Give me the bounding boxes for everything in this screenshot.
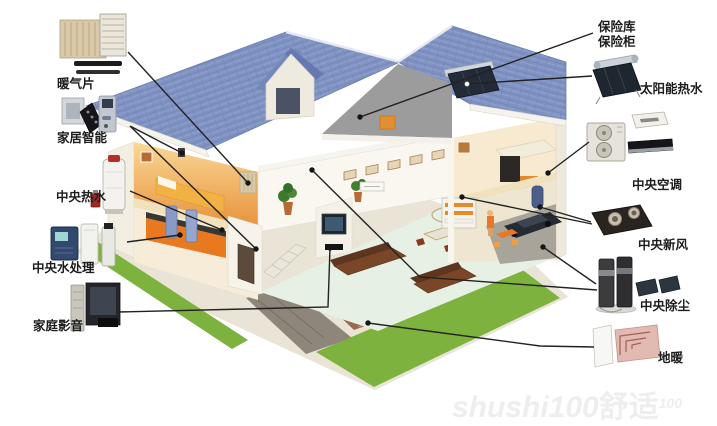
- label-vault-line1: 保险库: [597, 19, 636, 34]
- vacuum-inlet-icon-2: [659, 276, 680, 293]
- water-treatment-thumbnail: [51, 223, 115, 266]
- label-central-hot-water: 中央热水: [56, 189, 107, 204]
- corner-pillar: [448, 138, 454, 262]
- right-wing: [442, 118, 566, 264]
- label-water-treatment: 中央水处理: [32, 260, 95, 275]
- diagram-canvas: 暖气片 家居智能 中央热水 中央水处理 家庭影音 保险库 保险柜 太阳能热水 中…: [0, 0, 717, 426]
- label-solar: 太阳能热水: [640, 81, 703, 96]
- vacuum-inlet-icon-1: [636, 279, 658, 296]
- smart-home-thumbnail: [62, 96, 116, 133]
- display-cabinet: [442, 198, 476, 228]
- label-fresh-air: 中央新风: [638, 237, 689, 252]
- label-central-ac: 中央空调: [632, 177, 682, 192]
- label-central-vacuum: 中央除尘: [640, 298, 691, 313]
- label-radiator: 暖气片: [57, 76, 95, 91]
- water-heater-thumbnail: [91, 155, 125, 214]
- right-art-frame: [458, 142, 470, 153]
- watermark: shushi100舒适100: [452, 390, 682, 424]
- ceiling-ac-cassette-1f: [360, 182, 384, 191]
- ac-units-thumbnail: [587, 112, 673, 161]
- front-door: [238, 244, 254, 284]
- house-illustration: [75, 26, 568, 390]
- bedroom-art-frame: [141, 152, 152, 162]
- fresh-air-unit-thumbnail: [592, 205, 652, 235]
- attic-niche: [380, 116, 395, 129]
- floor-heating-thumbnail: [593, 325, 660, 367]
- right-side-wall: [556, 118, 566, 260]
- label-floor-heating: 地暖: [658, 350, 684, 365]
- label-smart-home: 家居智能: [57, 130, 108, 145]
- solar-heater-thumbnail: [593, 55, 641, 104]
- label-home-av: 家庭影音: [33, 318, 84, 333]
- label-vault-line2: 保险柜: [597, 34, 636, 49]
- home-systems-diagram: 暖气片 家居智能 中央热水 中央水处理 家庭影音 保险库 保险柜 太阳能热水 中…: [0, 0, 717, 426]
- radiator-thumbnail: [60, 14, 126, 74]
- media-cabinet: [500, 156, 520, 182]
